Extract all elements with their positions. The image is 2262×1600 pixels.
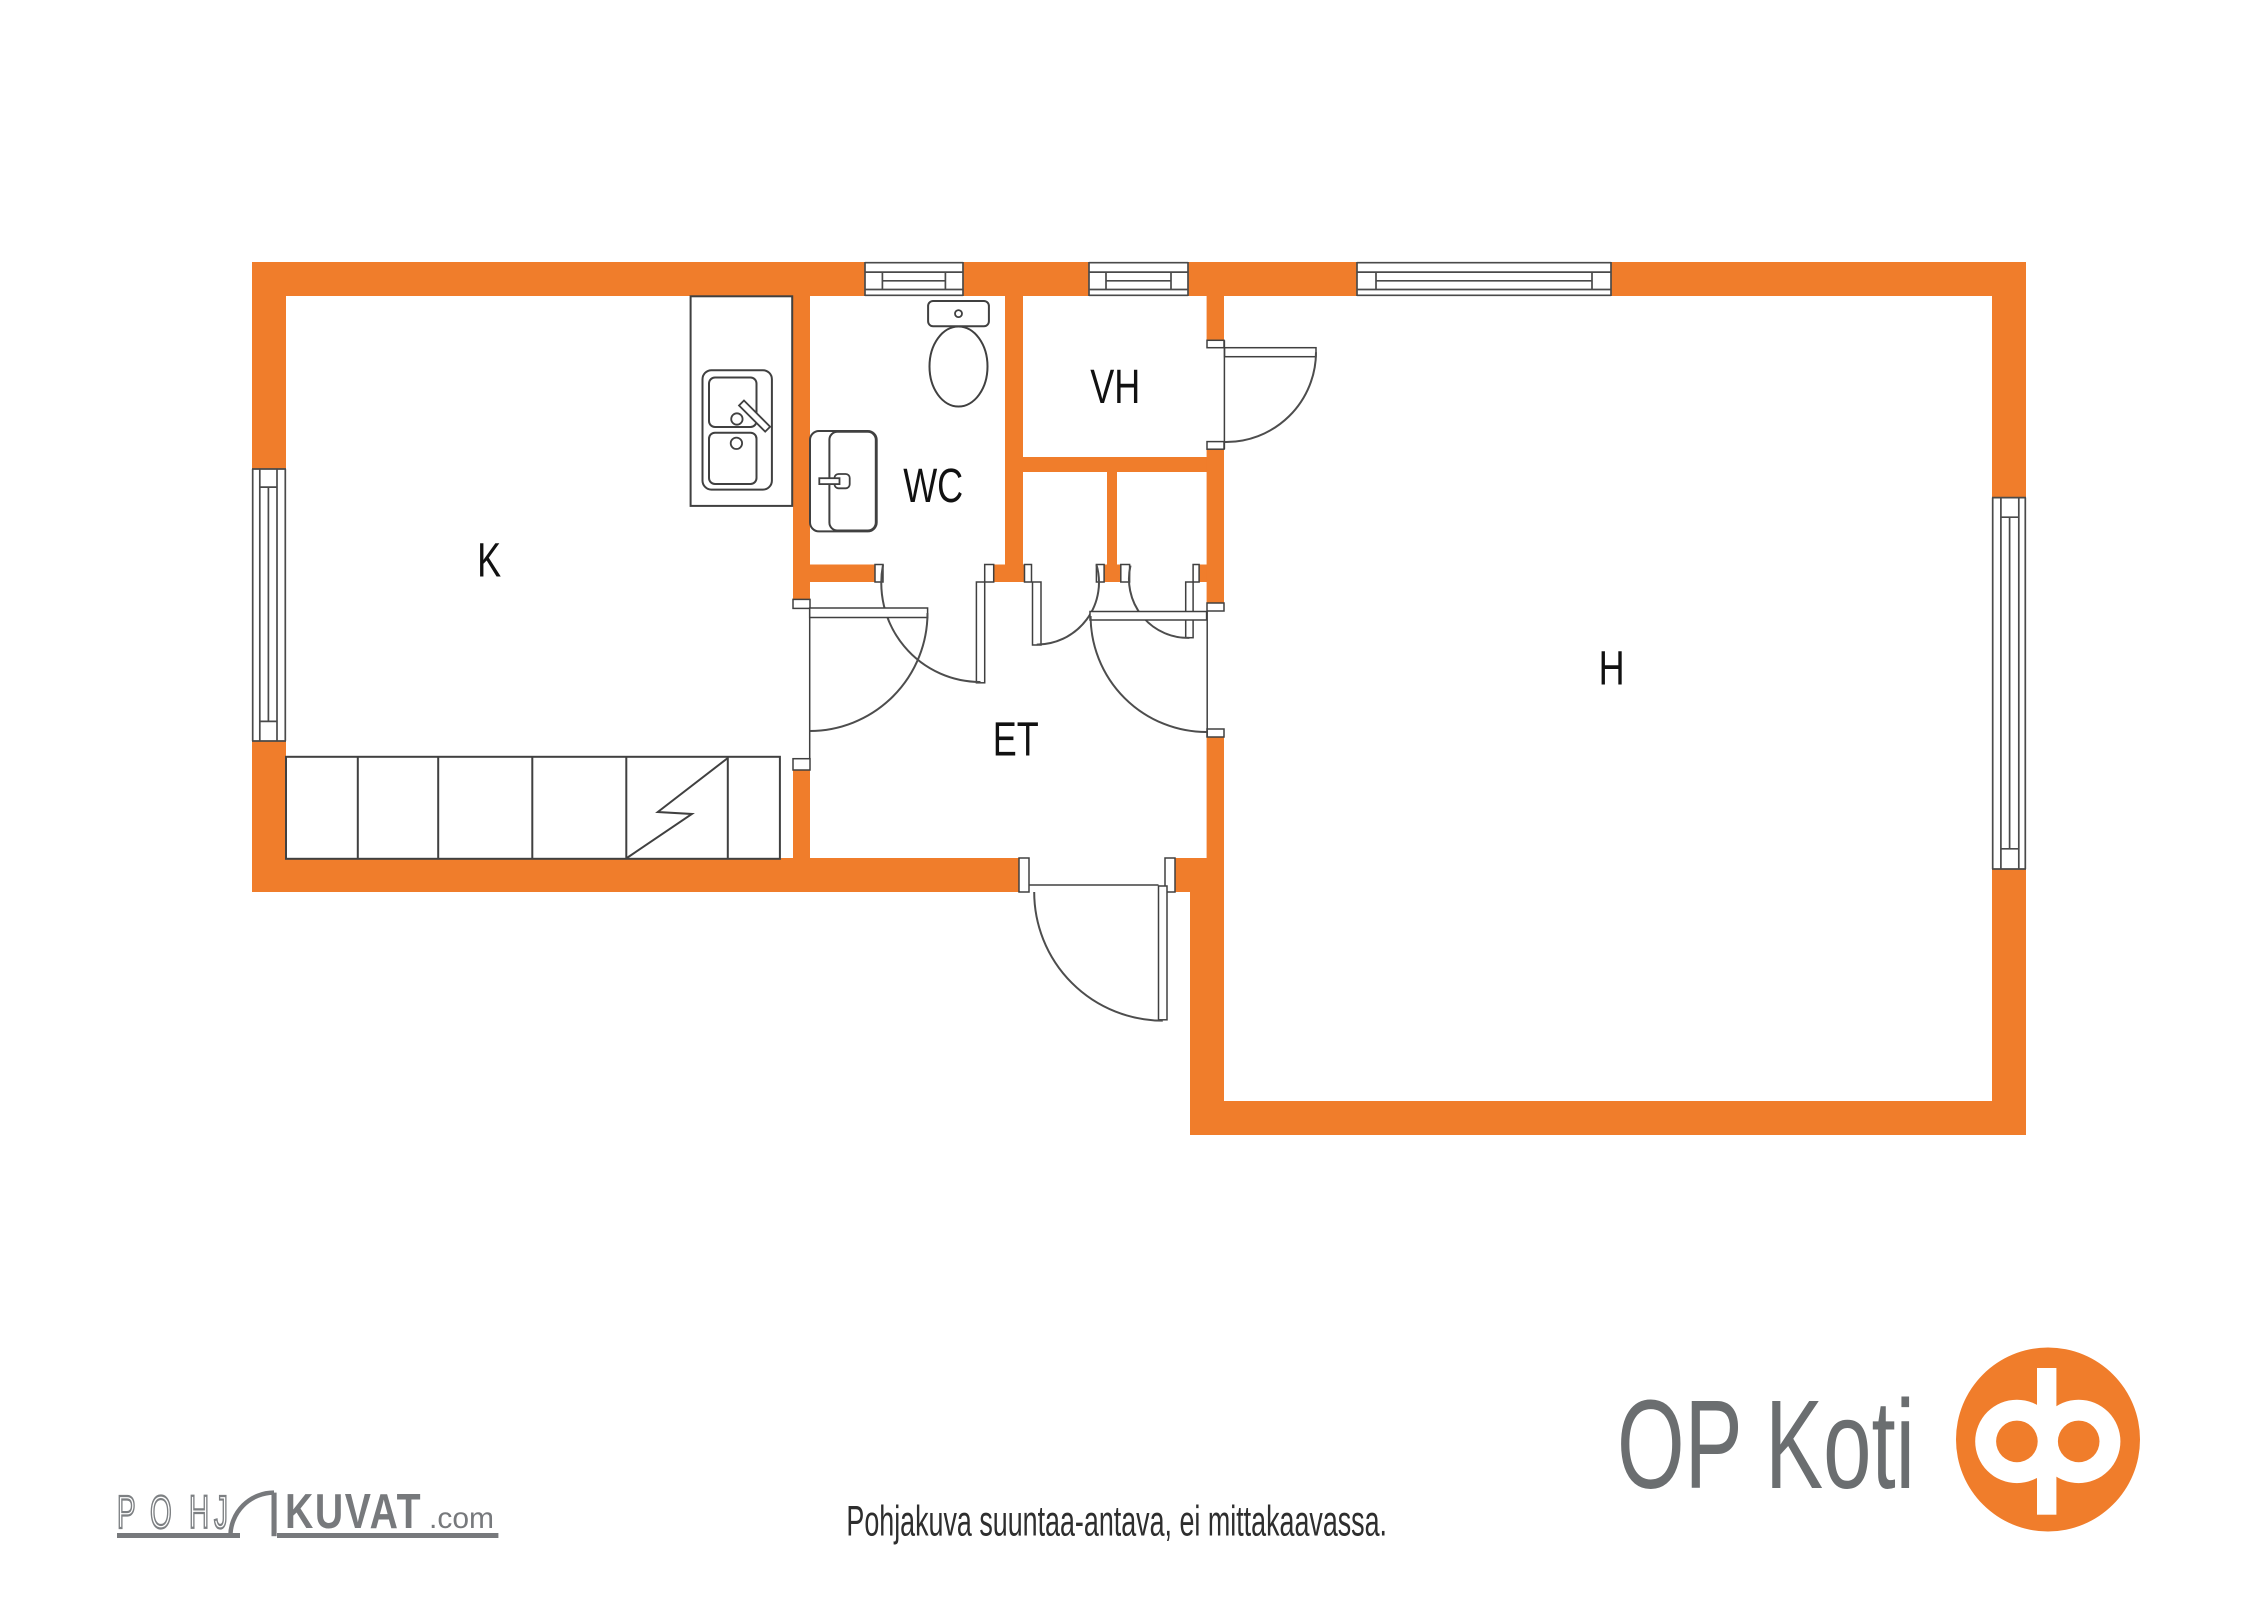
svg-text:H: H xyxy=(1599,642,1625,695)
svg-text:WC: WC xyxy=(903,459,963,512)
svg-text:VH: VH xyxy=(1090,360,1140,413)
svg-text:Pohjakuva suuntaa-antava, ei m: Pohjakuva suuntaa-antava, ei mittakaavas… xyxy=(846,1497,1387,1545)
svg-text:ET: ET xyxy=(993,713,1039,766)
svg-text:H: H xyxy=(189,1487,209,1539)
svg-text:.com: .com xyxy=(429,1502,494,1535)
svg-text:O: O xyxy=(150,1487,172,1539)
svg-text:OP Koti: OP Koti xyxy=(1617,1374,1915,1515)
svg-text:K: K xyxy=(477,533,501,586)
svg-text:KUVAT: KUVAT xyxy=(285,1485,422,1539)
svg-text:P: P xyxy=(117,1487,136,1539)
svg-text:J: J xyxy=(214,1487,228,1539)
